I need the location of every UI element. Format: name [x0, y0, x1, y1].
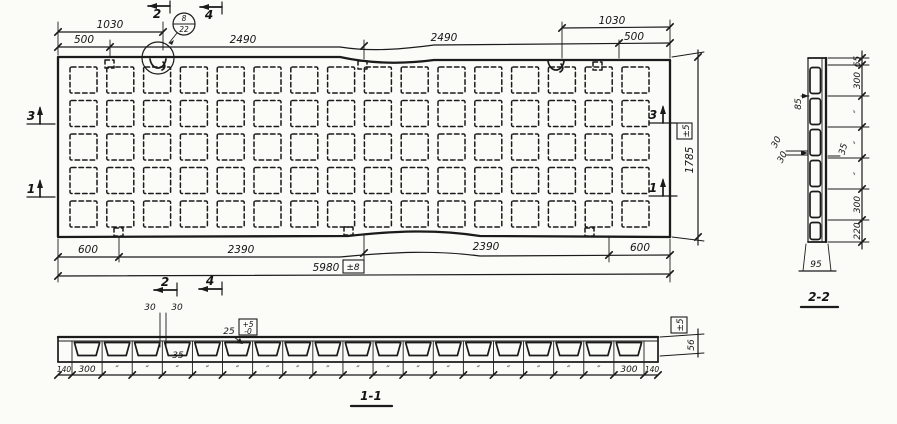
dim-300: 300 — [78, 365, 95, 375]
coffer-square — [70, 168, 97, 194]
coffer-square — [291, 134, 318, 160]
coffer-square — [585, 67, 612, 93]
dim-140-right: 140 — [645, 365, 660, 374]
coffer-profile — [556, 343, 581, 356]
coffer-square — [401, 67, 428, 93]
coffer-square — [107, 67, 134, 93]
coffer-square — [107, 101, 134, 127]
coffer-profile — [810, 192, 821, 218]
coffer-profile — [225, 343, 250, 356]
dim-35: 35 — [172, 351, 184, 361]
cut-label: 1 — [27, 182, 35, 196]
coffer-square — [585, 168, 612, 194]
dim-35: 35 — [838, 142, 851, 156]
coffer-square — [401, 101, 428, 127]
coffer-square — [364, 201, 391, 227]
coffer-square — [180, 168, 207, 194]
coffer-square — [217, 67, 244, 93]
embed-mark — [114, 228, 123, 236]
coffer-profile — [810, 223, 821, 240]
coffer-square — [291, 201, 318, 227]
coffer-square — [180, 134, 207, 160]
coffer-square — [180, 67, 207, 93]
coffer-square — [548, 201, 575, 227]
dim-1030-right: 1030 — [599, 15, 626, 27]
cut-label: 1 — [649, 181, 657, 195]
dim-30-upper: 30 — [770, 135, 784, 150]
coffer-profile — [586, 343, 611, 356]
drawing-sheet: 8 22 1030 1030 500 2490 — [0, 0, 897, 424]
section-label-2-2: 2-2 — [808, 290, 830, 304]
coffer-square — [512, 67, 539, 93]
dim-rib-group: 30 30 35 — [144, 303, 184, 361]
coffer-profile — [810, 161, 821, 187]
coffer-profile — [810, 130, 821, 156]
dim-ditto: ″ — [567, 365, 571, 375]
coffer-profile — [195, 343, 220, 356]
dim-85: 85 — [794, 98, 804, 110]
cut-label: 2 — [161, 275, 169, 289]
tol-h: ±5 — [676, 318, 686, 332]
coffer-square — [585, 134, 612, 160]
coffer-square — [291, 67, 318, 93]
coffer-square — [585, 101, 612, 127]
dim-95-group: 95 — [799, 244, 836, 271]
coffer-square — [622, 134, 649, 160]
coffer-square — [585, 201, 612, 227]
dim-600-right: 600 — [630, 242, 650, 254]
dim-2390-left: 2390 — [228, 244, 255, 256]
dim-total-tol: ±8 — [346, 263, 360, 273]
coffer-square — [328, 201, 355, 227]
coffer-square — [328, 134, 355, 160]
dim-95: 95 — [810, 260, 822, 270]
dim-30-right: 30 — [171, 303, 183, 313]
dim-ditto: ″ — [507, 365, 511, 375]
coffer-square — [70, 201, 97, 227]
dim-ditto: ″ — [176, 365, 180, 375]
section-1-1: 30 30 35 25 +5 -0 56 ±5 140300″″″″″″″″″″… — [55, 303, 704, 406]
coffer-square — [401, 168, 428, 194]
coffer-square — [254, 67, 281, 93]
embed-mark — [585, 228, 594, 236]
coffer-square — [254, 201, 281, 227]
dim-1030-left: 1030 — [97, 19, 124, 31]
coffer-square — [438, 67, 465, 93]
cut-mark-2-bottom: 2 — [154, 275, 177, 296]
coffer-square — [107, 134, 134, 160]
dim-height-group: 56 ±5 — [660, 317, 704, 357]
dim-500-right: 500 — [624, 31, 644, 43]
coffer-square — [217, 134, 244, 160]
dim-ditto: ″ — [326, 365, 330, 375]
dim-total: 5980 — [313, 262, 340, 274]
dim-600-left: 600 — [78, 244, 98, 256]
coffer-square — [622, 67, 649, 93]
rib-cells — [810, 68, 821, 240]
coffer-square — [107, 168, 134, 194]
coffer-square — [291, 168, 318, 194]
embed-mark — [344, 227, 353, 235]
coffer-square — [548, 134, 575, 160]
cut-marks: 2 4 2 4 3 — [27, 1, 677, 296]
coffer-square — [254, 168, 281, 194]
coffer-square — [217, 201, 244, 227]
dim-2490-right: 2490 — [431, 32, 458, 44]
coffer-square — [622, 168, 649, 194]
coffer-square — [364, 67, 391, 93]
callout-balloon: 8 22 — [169, 13, 195, 45]
coffer-square — [475, 168, 502, 194]
coffer-square — [438, 168, 465, 194]
dim-500-left: 500 — [74, 34, 94, 46]
coffer-square — [548, 168, 575, 194]
dim-ditto: ″ — [597, 365, 601, 375]
coffer-square — [144, 168, 171, 194]
coffer-grid — [70, 67, 649, 227]
cut-label: 2 — [153, 7, 161, 21]
dim-text: 300 — [853, 72, 863, 89]
dim-30-lower: 30 — [776, 150, 790, 165]
cut-label: 3 — [649, 108, 657, 122]
coffer-square — [512, 168, 539, 194]
cut-label: 3 — [27, 109, 35, 123]
coffer-square — [622, 101, 649, 127]
coffer-profile — [255, 343, 280, 356]
callout-bottom-text: 22 — [179, 25, 189, 34]
cut-mark-4-bottom: 4 — [199, 274, 222, 295]
coffer-profile — [285, 343, 310, 356]
coffer-square — [180, 201, 207, 227]
dim-ditto: ″ — [146, 365, 150, 375]
coffer-square — [364, 134, 391, 160]
plan-view: 8 22 1030 1030 500 2490 — [27, 1, 704, 296]
dim-300: 300 — [620, 365, 637, 375]
dim-ditto: ″ — [447, 365, 451, 375]
coffer-square — [217, 168, 244, 194]
dim-h: 56 — [687, 339, 697, 351]
coffer-profile — [135, 343, 160, 356]
coffer-square — [512, 134, 539, 160]
coffer-square — [254, 134, 281, 160]
dim-width: 1785 — [684, 146, 696, 173]
dim-flange-group: 25 +5 -0 — [223, 319, 257, 344]
coffer-square — [438, 101, 465, 127]
coffer-profile — [345, 343, 370, 356]
dim-2490-left: 2490 — [230, 34, 257, 46]
dim-text: 65 — [853, 56, 863, 68]
coffer-square — [254, 101, 281, 127]
cut-label: 4 — [205, 274, 214, 288]
blueprint-svg: 8 22 1030 1030 500 2490 — [0, 0, 897, 424]
dim-ditto: ″ — [236, 365, 240, 375]
coffer-square — [70, 101, 97, 127]
cut-mark-1-left: 1 — [27, 179, 55, 197]
section-label-1-1: 1-1 — [360, 389, 382, 403]
coffer-profile — [406, 343, 431, 356]
dim-140-left: 140 — [57, 365, 72, 374]
embed-mark — [593, 62, 602, 70]
dim-ditto: ″ — [296, 365, 300, 375]
lifting-loop-icon — [150, 59, 166, 70]
coffer-square — [475, 201, 502, 227]
callout-top-text: 8 — [182, 14, 187, 23]
coffer-square — [364, 101, 391, 127]
tol-minus: -0 — [244, 327, 252, 336]
dim-ditto: ″ — [115, 365, 119, 375]
coffer-square — [144, 101, 171, 127]
cut-mark-2-top: 2 — [148, 1, 170, 21]
cut-label: 4 — [204, 8, 213, 22]
coffer-profile — [616, 343, 641, 356]
coffer-profile — [436, 343, 461, 356]
dim-row-300s: 140300″″″″″″″″″″″″″″″″″300140 — [55, 365, 661, 378]
coffer-profile — [74, 343, 99, 356]
coffer-square — [144, 201, 171, 227]
dim-text: 220 — [853, 222, 863, 239]
dim-ditto: ″ — [206, 365, 210, 375]
dim-ditto: ″ — [477, 365, 481, 375]
dim-ditto: ″ — [356, 365, 360, 375]
coffer-profile — [810, 99, 821, 125]
coffer-square — [512, 201, 539, 227]
dim-ditto: ″ — [266, 365, 270, 375]
coffer-profile — [466, 343, 491, 356]
coffer-square — [401, 201, 428, 227]
coffer-profile — [376, 343, 401, 356]
coffer-square — [70, 67, 97, 93]
coffer-square — [475, 67, 502, 93]
coffer-square — [70, 134, 97, 160]
coffer-profile — [526, 343, 551, 356]
dim-25: 25 — [223, 327, 235, 337]
coffer-square — [548, 101, 575, 127]
coffer-profile — [105, 343, 130, 356]
section-2-2: 65300″″″300220 95 85 30 30 35 2-2 — [770, 51, 869, 307]
coffer-square — [475, 134, 502, 160]
lifting-loop-icon — [548, 61, 564, 72]
coffer-square — [180, 101, 207, 127]
coffer-square — [475, 101, 502, 127]
coffer-profile — [810, 68, 821, 94]
coffer-square — [512, 101, 539, 127]
coffer-square — [401, 134, 428, 160]
cut-mark-1-right: 1 — [649, 178, 677, 196]
coffer-square — [438, 201, 465, 227]
coffer-square — [328, 101, 355, 127]
coffer-square — [622, 201, 649, 227]
coffer-square — [107, 201, 134, 227]
dim-text: 300 — [853, 196, 863, 213]
coffer-square — [217, 101, 244, 127]
coffer-profile — [315, 343, 340, 356]
coffer-square — [438, 134, 465, 160]
coffer-square — [328, 67, 355, 93]
coffer-square — [291, 101, 318, 127]
cut-mark-3-left: 3 — [27, 106, 55, 124]
dim-ditto: ″ — [386, 365, 390, 375]
coffer-square — [328, 168, 355, 194]
dim-2390-right: 2390 — [473, 241, 500, 253]
coffer-profile — [496, 343, 521, 356]
dim-30-left: 30 — [144, 303, 156, 313]
cut-mark-3-right: 3 — [649, 105, 677, 123]
cut-mark-4-top: 4 — [200, 2, 222, 22]
dim-row-1030: 1030 1030 — [58, 15, 670, 32]
dim-row-5980: 5980 ±8 — [58, 260, 670, 276]
dim-ditto: ″ — [417, 365, 421, 375]
dim-width-tol: ±5 — [682, 124, 692, 138]
coffer-square — [144, 134, 171, 160]
coffer-square — [364, 168, 391, 194]
dim-1785-group: 1785 ±5 — [677, 50, 698, 245]
dim-ditto: ″ — [537, 365, 541, 375]
